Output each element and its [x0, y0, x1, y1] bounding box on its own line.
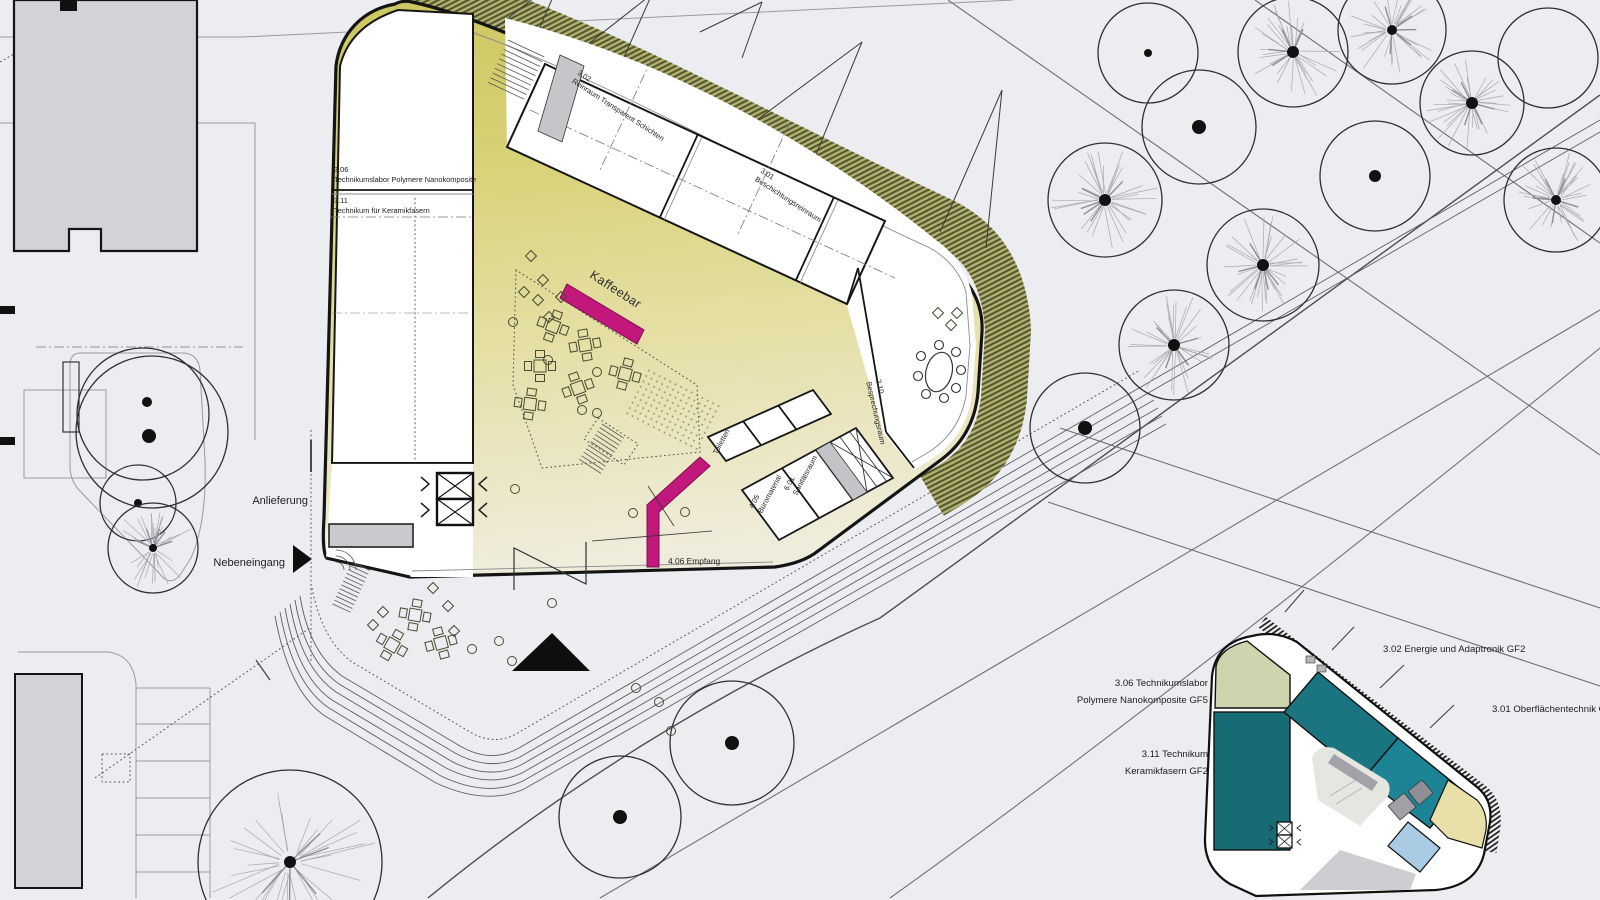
tree-trunk-dot	[1078, 421, 1092, 435]
loading-dock	[329, 524, 413, 547]
keyplan-desk	[1306, 656, 1315, 663]
tree-trunk-dot	[142, 397, 152, 407]
tree-trunk-dot	[725, 736, 739, 750]
keyplan-302-label: 3.02 Energie und Adaptronik GF2	[1383, 644, 1525, 655]
existing-building-north	[14, 0, 197, 251]
site-marker	[0, 437, 15, 445]
keyplan-306-label-line1: 3.06 Technikumslabor	[1115, 678, 1209, 689]
tree-trunk-dot	[1168, 339, 1180, 351]
tree-trunk-dot	[1257, 259, 1269, 271]
keyplan-301-label: 3.01 Oberflächentechnik GF1	[1492, 704, 1600, 715]
tree-trunk-dot	[1192, 120, 1206, 134]
keyplan-306-label-line2: Polymere Nanokomposite GF5	[1077, 695, 1208, 706]
room-311-number: 3.11	[334, 196, 348, 205]
anlieferung-label: Anlieferung	[252, 495, 308, 507]
nebeneingang-label: Nebeneingang	[213, 557, 285, 569]
tree-trunk-dot	[1099, 194, 1111, 206]
tree-trunk-dot	[1466, 97, 1478, 109]
site-marker	[60, 0, 77, 11]
tree-trunk-dot	[142, 429, 156, 443]
tree-trunk-dot	[613, 810, 627, 824]
room-306-label: Technikumslabor Polymere Nanokomposite	[334, 175, 476, 184]
tree-trunk-dot	[1551, 195, 1561, 205]
tree-trunk-dot	[1144, 49, 1152, 57]
tree-trunk-dot	[149, 544, 157, 552]
tree-trunk-dot	[1369, 170, 1381, 182]
empfang-label: 4.06 Empfang	[668, 556, 720, 566]
existing-building-south	[15, 674, 82, 888]
tree-trunk-dot	[284, 856, 296, 868]
keyplan-311-label-line2: Keramikfasern GF2	[1125, 766, 1208, 777]
room-311-label: Technikum für Keramikfasern	[334, 206, 430, 215]
keyplan-311-label-line1: 3.11 Technikum	[1142, 749, 1208, 760]
room-306-number: 3.06	[334, 165, 348, 174]
site-plan-canvas: 3.06 Technikumslabor Polymere Nanokompos…	[0, 0, 1600, 900]
tree-trunk-dot	[1287, 46, 1299, 58]
tree-trunk-dot	[1387, 25, 1397, 35]
room-306-technikumslabor	[332, 10, 473, 463]
keyplan-desk	[1317, 665, 1326, 672]
site-marker	[0, 306, 15, 314]
